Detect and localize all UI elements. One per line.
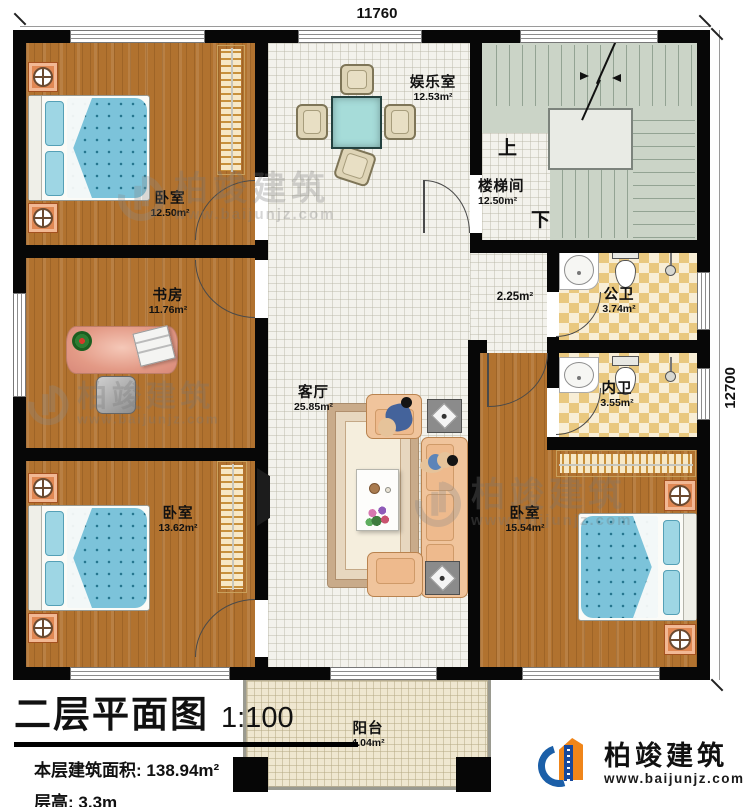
armchair — [367, 552, 423, 597]
plant-icon — [72, 331, 92, 351]
office-chair — [96, 376, 136, 414]
pillow — [663, 570, 680, 615]
toilet-tank — [612, 356, 639, 366]
pillow — [663, 520, 680, 565]
room-label-bedroom-bl: 卧室 13.62m² — [128, 507, 228, 534]
room-label-bedroom-r: 卧室 15.54m² — [493, 507, 557, 534]
wall — [547, 353, 559, 388]
flowers-icon — [364, 504, 392, 530]
wall — [547, 337, 559, 353]
sink-icon — [564, 255, 594, 285]
side-table — [427, 399, 462, 433]
wardrobe — [217, 45, 245, 175]
window — [697, 368, 710, 420]
plan-scale: 1:100 — [221, 702, 294, 735]
window — [13, 293, 26, 397]
bed — [28, 95, 150, 201]
wall — [547, 253, 559, 292]
game-chair — [296, 104, 328, 140]
room-label-study: 书房 11.76m² — [118, 289, 218, 316]
window — [70, 30, 205, 43]
stair-up-label: 上 — [498, 133, 517, 160]
door-leaf — [423, 180, 425, 233]
person-head — [401, 397, 412, 408]
bed-headboard — [29, 506, 42, 610]
company-logo-icon — [538, 736, 596, 792]
window — [697, 272, 710, 330]
nightstand — [28, 473, 58, 503]
room-label-bedroom-tl: 卧室 12.50m² — [120, 192, 220, 219]
dimension-tick — [711, 28, 724, 41]
dimension-tick — [14, 13, 27, 26]
wall — [547, 437, 710, 450]
stair-break-arrow — [612, 74, 621, 82]
bed-headboard — [683, 514, 696, 620]
bed-headboard — [29, 96, 42, 200]
room-label-entertainment: 娱乐室 12.53m² — [388, 76, 478, 103]
bed — [578, 513, 697, 621]
game-chair — [384, 104, 416, 140]
table-lamp-icon — [429, 565, 455, 591]
dimension-top-value: 11760 — [327, 5, 427, 22]
door-leaf — [487, 353, 489, 407]
lamp-icon — [669, 629, 691, 650]
game-chair — [340, 64, 374, 95]
stair-break-arrow — [580, 72, 589, 80]
pillow — [45, 511, 64, 556]
room-label-bath-public: 公卫 3.74m² — [587, 288, 651, 315]
dimension-line-right — [719, 30, 720, 680]
floor-plan: 卧室 12.50m² 书房 11.76m² 卧室 13.62m² 娱乐室 12.… — [0, 0, 750, 807]
balcony-sliding-door — [330, 667, 437, 680]
stair-down-label: 下 — [531, 205, 550, 232]
window — [520, 30, 658, 43]
dimension-line-top — [20, 26, 710, 27]
title-rule — [14, 742, 358, 747]
person-sitting — [420, 448, 472, 482]
wall — [255, 657, 268, 667]
plan-title: 二层平面图 — [14, 684, 209, 738]
stair-treads-upper — [484, 45, 695, 106]
nightstand — [664, 624, 696, 655]
corridor-area-label: 2.25m² — [483, 291, 547, 304]
stair-treads-right — [633, 108, 695, 238]
lamp-icon — [33, 618, 53, 638]
pillow — [45, 561, 64, 606]
game-table — [331, 96, 382, 149]
nightstand — [28, 203, 58, 233]
logo-column — [564, 745, 573, 781]
company-logo: 柏竣建筑 www.baijunjz.com — [538, 736, 745, 792]
dimension-right-value: 12700 — [722, 367, 739, 409]
floor-height-line: 层高: 3.3m — [14, 788, 358, 807]
company-url: www.baijunjz.com — [604, 771, 745, 786]
company-name: 柏竣建筑 — [604, 742, 745, 772]
person-sitting — [378, 396, 424, 440]
pillow — [45, 101, 64, 146]
lamp-icon — [669, 485, 691, 506]
wall — [468, 340, 487, 353]
side-table — [425, 561, 460, 595]
shower-icon — [665, 265, 676, 276]
nightstand — [28, 613, 58, 643]
wall — [20, 245, 268, 258]
sofa-cushion — [426, 494, 454, 541]
window — [522, 667, 660, 680]
person-head — [447, 455, 458, 466]
wall — [470, 240, 710, 253]
lamp-icon — [33, 478, 53, 498]
wall — [468, 353, 480, 667]
title-block: 二层平面图 1:100 本层建筑面积: 138.94m² 层高: 3.3m — [14, 684, 358, 807]
dimension-tick — [711, 679, 724, 692]
lamp-icon — [33, 67, 53, 87]
stair-treads-lower — [550, 170, 633, 238]
shower-icon — [665, 371, 676, 382]
wall — [697, 30, 710, 680]
table-lamp-icon — [431, 403, 457, 429]
wall — [255, 43, 268, 177]
wardrobe — [556, 450, 696, 477]
nightstand — [28, 62, 58, 92]
pillow — [45, 151, 64, 196]
plate — [369, 483, 380, 494]
room-label-stairwell: 楼梯间 12.50m² — [478, 180, 558, 207]
room-label-bath-ensuite: 内卫 3.55m² — [585, 382, 649, 409]
wall — [548, 340, 710, 353]
window — [70, 667, 230, 680]
window — [298, 30, 422, 43]
cup — [385, 487, 391, 493]
room-label-living: 客厅 25.85m² — [266, 386, 361, 413]
sink-counter — [559, 250, 599, 290]
stair-landing — [548, 108, 633, 170]
person-legs — [378, 418, 396, 437]
sofa-cushion — [376, 558, 415, 584]
wall — [470, 43, 482, 175]
nightstand — [664, 480, 696, 511]
floor-area-line: 本层建筑面积: 138.94m² — [14, 756, 358, 781]
tv-icon — [257, 468, 270, 526]
pillar — [456, 757, 491, 792]
wall — [20, 448, 268, 461]
lamp-icon — [33, 208, 53, 228]
